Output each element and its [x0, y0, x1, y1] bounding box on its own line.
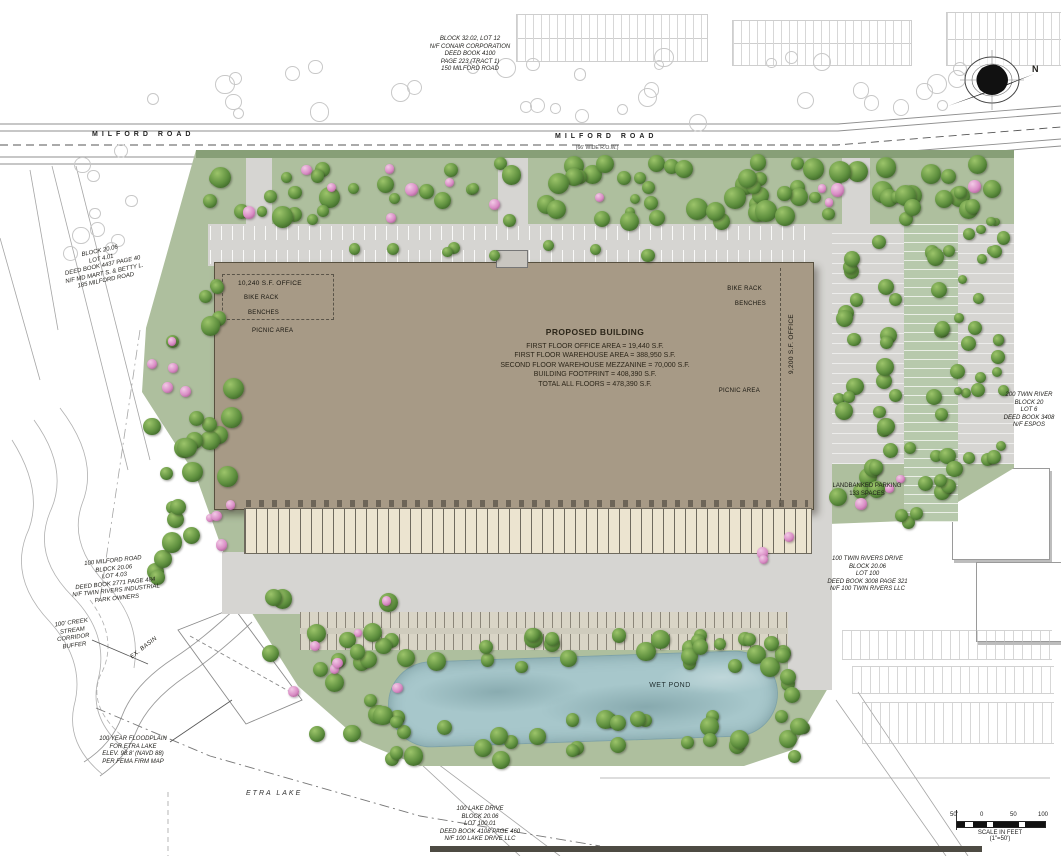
- office-east-divider: [780, 268, 782, 506]
- trailer-stall-lines: [300, 612, 788, 628]
- entry-drive: [498, 158, 528, 226]
- north-label: N: [1032, 64, 1039, 74]
- scale-tick-label: 50': [950, 812, 958, 818]
- label-wet-pond: WET POND: [630, 682, 710, 689]
- scale-caption: SCALE IN FEET (1"=50'): [950, 830, 1050, 842]
- scale-tick-label: 0: [980, 812, 983, 818]
- entry-drive: [246, 158, 272, 226]
- scale-bar-segment: [1025, 822, 1045, 827]
- scale-tick-label: 50: [1010, 812, 1017, 818]
- floodplain-note: 100 YEAR FLOODPLAINFOR ETRA LAKEELEV. 98…: [88, 736, 178, 766]
- trailer-stall-lines: [300, 634, 788, 650]
- parcel-note-south: 100 LAKE DRIVEBLOCK 20.06LOT 100.01DEED …: [410, 806, 550, 844]
- parcel-note-east: 100 TWIN RIVERS DRIVEBLOCK 20.06LOT 100D…: [820, 556, 915, 594]
- label-milford-road-center: MILFORD ROAD: [555, 133, 657, 140]
- label-milford-row: (66' WIDE R.O.W.): [576, 145, 619, 150]
- north-hedge-shadow: [196, 150, 1014, 158]
- north-arrow: [940, 44, 1050, 116]
- label-landbanked-parking: LANDBANKED PARKING133 SPACES: [828, 483, 906, 498]
- entry-drive: [842, 158, 870, 226]
- building-title: PROPOSED BUILDING: [430, 328, 760, 338]
- neighbor-parking-rows: [862, 702, 1054, 744]
- scale-bar-segment: [973, 822, 987, 827]
- scale-bar-segment: [957, 822, 965, 827]
- parcel-note-north: BLOCK 32.02, LOT 12N/F CONAIR CORPORATIO…: [395, 36, 545, 74]
- neighbor-parking: [732, 20, 912, 66]
- label-bike-rack-west: BIKE RACK: [244, 295, 279, 301]
- label-picnic-east: PICNIC AREA: [700, 388, 760, 394]
- landbanked-parking-strip: [904, 224, 958, 522]
- neighbor-parking-rows: [852, 666, 1054, 694]
- scale-bar-segment: [965, 822, 973, 827]
- scale-caption-line2: (1"=50'): [950, 836, 1050, 842]
- label-picnic-west: PICNIC AREA: [252, 328, 293, 334]
- scale-tick-label: 100: [1038, 812, 1048, 818]
- label-bike-rack-east: BIKE RACK: [704, 286, 762, 292]
- neighbor-parking-rows: [842, 630, 1052, 660]
- parking-stall-lines: [210, 226, 830, 240]
- label-etra-lake: ETRA LAKE: [246, 790, 302, 797]
- label-benches-west: BENCHES: [248, 310, 279, 316]
- south-boundary-hedge: [430, 846, 982, 852]
- label-office-east: 9,200 S.F. OFFICE: [788, 284, 800, 404]
- scale-bar-segment: [993, 822, 1019, 827]
- building-stats: FIRST FLOOR OFFICE AREA = 19,440 S.F.FIR…: [430, 342, 760, 390]
- label-benches-east: BENCHES: [708, 301, 766, 307]
- scale-bar: 50' 0 50 100 SCALE IN FEET (1"=50'): [950, 812, 1054, 848]
- label-office-west: 10,240 S.F. OFFICE: [238, 280, 302, 287]
- loading-dock-strip: [244, 508, 812, 554]
- building-text-block: PROPOSED BUILDING FIRST FLOOR OFFICE ARE…: [430, 328, 760, 389]
- loading-dock-doors: [246, 500, 808, 507]
- label-milford-road-left: MILFORD ROAD: [92, 131, 194, 138]
- scale-bar-blocks: [956, 821, 1046, 828]
- site-plan-canvas: BLOCK 32.02, LOT 12N/F CONAIR CORPORATIO…: [0, 0, 1061, 856]
- building-entry: [496, 250, 528, 268]
- truck-court: [222, 552, 812, 614]
- wet-pond: [387, 649, 780, 749]
- parcel-note-northeast: 200 TWIN RIVERBLOCK 20LOT 6DEED BOOK 340…: [998, 392, 1060, 430]
- trailer-parking-strip: [300, 612, 788, 650]
